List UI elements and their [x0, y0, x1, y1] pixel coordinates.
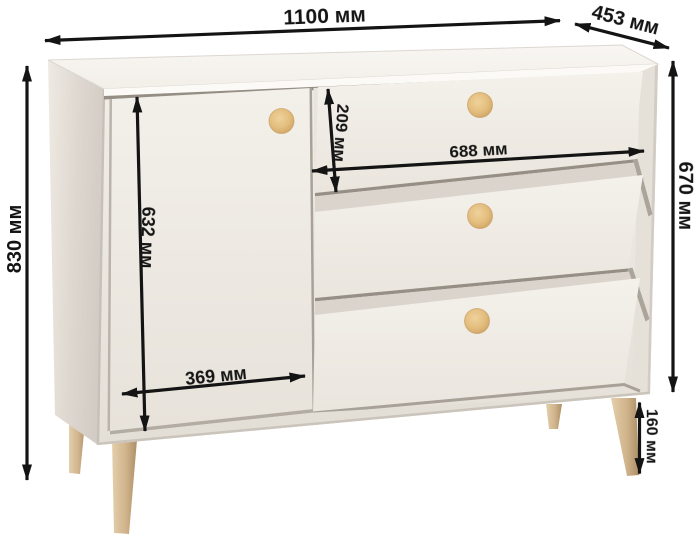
svg-text:688 мм: 688 мм — [449, 139, 508, 162]
svg-text:632 мм: 632 мм — [137, 207, 159, 269]
svg-text:1100 мм: 1100 мм — [283, 3, 366, 29]
svg-text:830 мм: 830 мм — [4, 205, 26, 274]
svg-text:209 мм: 209 мм — [329, 103, 352, 162]
svg-text:160 мм: 160 мм — [643, 409, 660, 464]
svg-text:670 мм: 670 мм — [674, 162, 696, 231]
